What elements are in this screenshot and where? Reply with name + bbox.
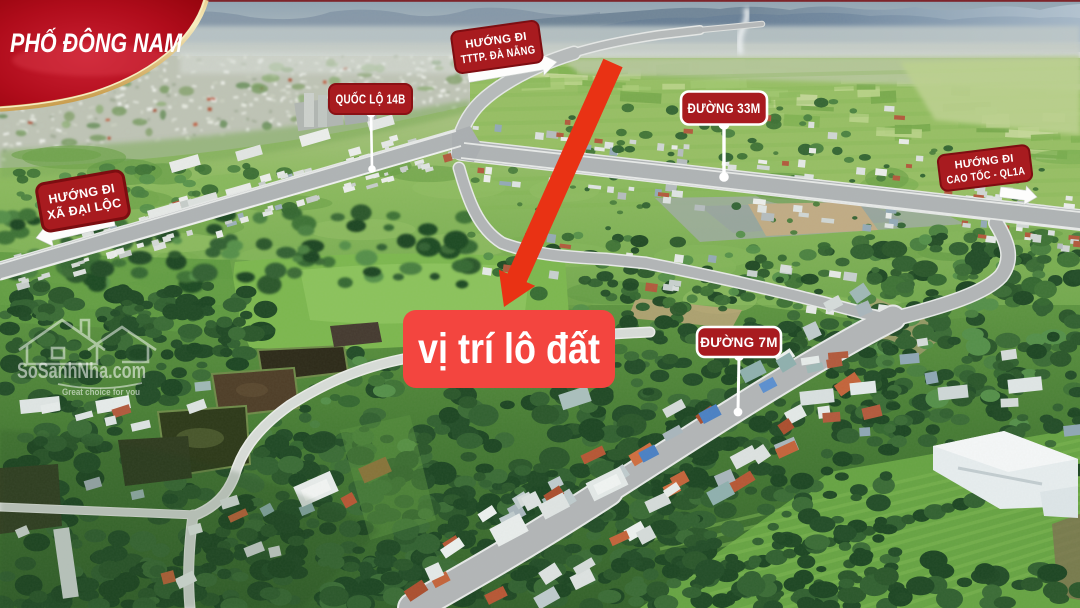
svg-text:Great choice for you: Great choice for you (62, 387, 140, 398)
svg-text:PHỐ ĐÔNG NAM: PHỐ ĐÔNG NAM (10, 27, 182, 58)
svg-text:ĐƯỜNG 7M: ĐƯỜNG 7M (700, 335, 778, 350)
svg-text:QUỐC LỘ 14B: QUỐC LỘ 14B (336, 92, 406, 107)
svg-text:SoSanhNha.com: SoSanhNha.com (17, 358, 146, 383)
svg-text:ĐƯỜNG 33M: ĐƯỜNG 33M (688, 99, 761, 116)
svg-text:vị trí lô đất: vị trí lô đất (418, 325, 600, 373)
